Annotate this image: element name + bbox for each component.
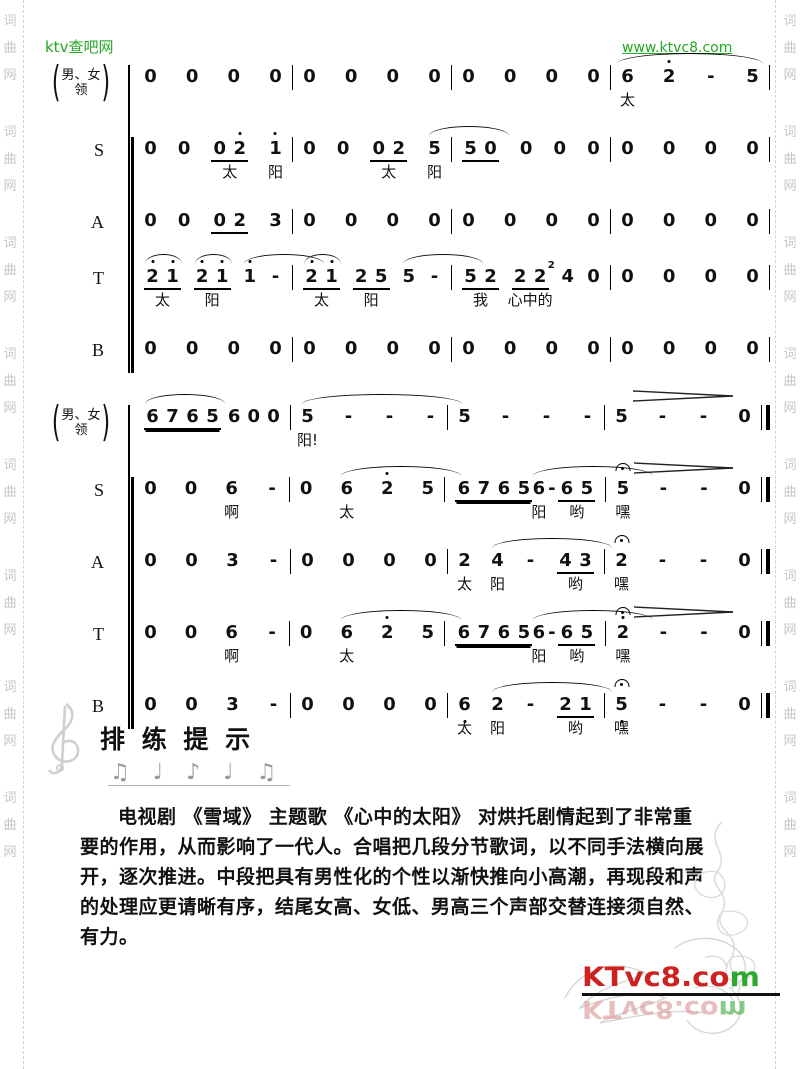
- treble-clef-icon: [36, 698, 94, 778]
- rest-note: 0: [227, 66, 240, 88]
- side-border-char: 网: [783, 284, 796, 311]
- slur-arc: [341, 466, 461, 476]
- side-border-char: 词: [3, 674, 16, 701]
- measure: 0000: [291, 550, 447, 572]
- barline: [769, 137, 770, 162]
- final-barline: [761, 549, 770, 574]
- side-border-char: 词: [783, 341, 796, 368]
- voice-label: S: [36, 140, 126, 161]
- staff-row: S0002太1阳0002太5阳500000000: [36, 130, 770, 184]
- note-group: 52我: [462, 266, 499, 290]
- note: 6: [146, 406, 159, 428]
- barline: [769, 265, 770, 290]
- tips-header: 排 练 提 示 ♫ ♩ ♪ ♩ ♫: [36, 712, 760, 786]
- side-border-char: 词: [783, 8, 796, 35]
- side-border-char: 词: [3, 341, 16, 368]
- rest-note: 0: [621, 210, 634, 232]
- rest-note: 0: [738, 550, 751, 572]
- rest-note: 0: [303, 138, 316, 160]
- note: 5: [464, 266, 477, 288]
- dash-note: -: [269, 266, 282, 288]
- rest-note: 0: [428, 210, 441, 232]
- slur-arc: [145, 394, 225, 404]
- note: 1阳: [269, 138, 282, 160]
- note: 5: [517, 622, 530, 644]
- dash-note: -: [656, 406, 669, 428]
- dash-note: -: [697, 622, 710, 644]
- watermark-reflection-green: m: [719, 995, 747, 1024]
- side-border-char: 网: [783, 506, 796, 533]
- lyric: 阳: [490, 575, 505, 593]
- measure: 5阳!---: [291, 406, 447, 428]
- note: 6: [560, 478, 573, 500]
- note: 6: [186, 406, 199, 428]
- rest-note: 0: [621, 338, 634, 360]
- rest-note: 0: [372, 138, 385, 160]
- watermark-text: KTvc8.com: [582, 962, 800, 993]
- side-border-char: 网: [783, 839, 796, 866]
- rest-note: 0: [587, 210, 600, 232]
- note: 4: [561, 266, 574, 288]
- site-logo[interactable]: ktv查吧网: [45, 36, 113, 57]
- rest-note: 0: [186, 66, 199, 88]
- note: 5: [746, 66, 759, 88]
- hairpin-icon: [633, 390, 733, 402]
- fermata-icon: [615, 607, 630, 615]
- lyric: 阳: [364, 291, 379, 309]
- side-border-char: 词: [3, 230, 16, 257]
- note-group: 6765: [455, 622, 532, 646]
- dash-note: -: [697, 478, 710, 500]
- measure: 5--0: [605, 406, 761, 428]
- dash-note: -: [524, 550, 537, 572]
- measure: 06太25: [290, 478, 445, 500]
- measure: 21太25阳5-: [293, 266, 451, 290]
- note: 2: [355, 266, 368, 288]
- rest-note: 0: [746, 138, 759, 160]
- side-border-char: 曲: [3, 479, 16, 506]
- side-border-char: 词: [783, 563, 796, 590]
- rest-note: 0: [663, 338, 676, 360]
- note: 6阳: [532, 478, 545, 500]
- side-border-char: 曲: [783, 35, 796, 62]
- lyric: 阳: [205, 291, 220, 309]
- measure: 6太2-5: [611, 66, 769, 88]
- note: 5: [421, 478, 434, 500]
- staff-row: A003-00002太4阳-43哟2嘿--0: [36, 542, 770, 596]
- lyric: 阳: [531, 647, 546, 665]
- voice-label: S: [36, 480, 126, 501]
- rest-note: 0: [504, 210, 517, 232]
- note-group: 25阳: [353, 266, 390, 290]
- rest-note: 0: [462, 210, 475, 232]
- note: 6: [497, 622, 510, 644]
- site-url-link[interactable]: www.ktvc8.com: [622, 40, 732, 56]
- side-border-char: 词: [783, 230, 796, 257]
- slur-arc: [429, 126, 509, 136]
- note: 5: [206, 406, 219, 428]
- lyric: 啊: [224, 503, 239, 521]
- rest-note: 0: [424, 550, 437, 572]
- left-side-watermark-text: 词曲网词曲网词曲网词曲网词曲网词曲网词曲网词曲网: [0, 0, 20, 1069]
- rest-note: 0: [504, 338, 517, 360]
- note: 1: [166, 266, 179, 288]
- note: 2: [663, 66, 676, 88]
- rest-note: 0: [300, 478, 313, 500]
- lyric: 太: [222, 163, 237, 181]
- barline: [769, 209, 770, 234]
- dash-note: -: [697, 406, 710, 428]
- note-group: 6765: [455, 478, 532, 502]
- measure: 06太25: [290, 622, 445, 644]
- measure: 006啊-: [134, 622, 289, 644]
- note: 6: [497, 478, 510, 500]
- note-group: 21阳: [194, 266, 231, 290]
- lyric: 太: [339, 647, 354, 665]
- rest-note: 0: [303, 210, 316, 232]
- side-border-char: 词: [3, 563, 16, 590]
- rest-note: 0: [269, 66, 282, 88]
- rest-note: 0: [178, 138, 191, 160]
- score-system: (男、女领)0000000000006太2-5S0002太1阳0002太5阳50…: [36, 58, 770, 384]
- rest-note: 0: [144, 138, 157, 160]
- dash-note: -: [656, 550, 669, 572]
- note: 7: [477, 622, 490, 644]
- note: 5: [580, 478, 593, 500]
- rest-note: 0: [345, 210, 358, 232]
- rest-note: 0: [247, 406, 260, 428]
- slur-arc: [341, 610, 461, 620]
- side-border-char: 网: [783, 617, 796, 644]
- staff-row: A00023000000000000: [36, 202, 770, 256]
- dash-note: -: [267, 550, 280, 572]
- lyric: 太: [457, 575, 472, 593]
- note: 6太: [621, 66, 634, 88]
- note-group: 65哟: [558, 478, 595, 502]
- rest-note: 0: [342, 550, 355, 572]
- note: 2: [381, 622, 394, 644]
- measure: 003-: [134, 550, 290, 572]
- dash-note: -: [545, 478, 558, 500]
- watermark-reflection-red: KTvc8.co: [582, 995, 719, 1024]
- dash-note: -: [540, 406, 553, 428]
- rest-note: 0: [185, 550, 198, 572]
- slur-arc: [492, 682, 612, 692]
- rest-note: 0: [704, 338, 717, 360]
- note: 5: [375, 266, 388, 288]
- lyric: 啊: [224, 647, 239, 665]
- rest-note: 0: [178, 210, 191, 232]
- measure: 006啊-: [134, 478, 289, 500]
- staff-row: T21太21阳1-21太25阳5-52我222心中的400000: [36, 258, 770, 312]
- system-barline: [128, 405, 130, 729]
- lyric: 心中的: [508, 291, 553, 309]
- note: 5: [421, 622, 434, 644]
- lyric: 阳: [531, 503, 546, 521]
- dash-note: -: [704, 66, 717, 88]
- slur-arc: [492, 538, 612, 548]
- side-border-char: 词: [3, 8, 16, 35]
- note-group: 02太: [211, 138, 248, 162]
- side-border-char: 曲: [783, 812, 796, 839]
- watermark-reflection: KTvc8.com: [582, 995, 800, 1024]
- side-border-char: 曲: [3, 146, 16, 173]
- rest-note: 0: [144, 338, 157, 360]
- measure: 0000: [452, 338, 610, 360]
- tips-paragraph: 电视剧 《雪域》 主题歌 《心中的太阳》 对烘托剧情起到了非常重要的作用，从而影…: [80, 802, 710, 952]
- rest-note: 0: [428, 66, 441, 88]
- side-border-char: 曲: [3, 590, 16, 617]
- side-border-char: 曲: [3, 812, 16, 839]
- dash-note: -: [424, 406, 437, 428]
- barline: [769, 65, 770, 90]
- side-border-char: 词: [783, 674, 796, 701]
- note-group: 43哟: [557, 550, 594, 574]
- rest-note: 0: [144, 478, 157, 500]
- voice-label: T: [36, 268, 126, 289]
- measure: 5嘿--0: [606, 478, 761, 500]
- note: 22: [534, 266, 547, 288]
- note: 6: [457, 622, 470, 644]
- hairpin-icon: [634, 462, 733, 474]
- measure: 0000: [611, 210, 769, 232]
- measure: 52我222心中的40: [452, 266, 610, 290]
- measure: 2太4阳-43哟: [448, 550, 604, 574]
- measure: 0000: [134, 338, 292, 360]
- note: 1: [216, 266, 229, 288]
- measure: 50000: [452, 138, 610, 162]
- dash-note: -: [657, 478, 670, 500]
- note-group: 02: [211, 210, 248, 234]
- measure: 0000: [611, 338, 769, 360]
- note: 2嘿: [615, 550, 628, 572]
- measure: 2嘿--0: [606, 622, 761, 644]
- side-border-char: 网: [3, 839, 16, 866]
- rest-note: 0: [663, 266, 676, 288]
- rest-note: 0: [545, 66, 558, 88]
- side-border-char: 网: [783, 728, 796, 755]
- note: 7: [166, 406, 179, 428]
- side-border-char: 词: [3, 119, 16, 146]
- rest-note: 0: [704, 266, 717, 288]
- lyric: 阳: [427, 163, 442, 181]
- rest-note: 0: [484, 138, 497, 160]
- dash-note: -: [266, 478, 279, 500]
- voice-label: A: [36, 212, 126, 233]
- side-border-char: 网: [783, 62, 796, 89]
- rest-note: 0: [704, 210, 717, 232]
- rest-note: 0: [345, 338, 358, 360]
- jianpu-score: (男、女领)0000000000006太2-5S0002太1阳0002太5阳50…: [36, 58, 770, 758]
- staff-row: T006啊-06太2567656阳-65哟2嘿--0: [36, 614, 770, 668]
- side-border-char: 曲: [783, 368, 796, 395]
- dash-note: -: [428, 266, 441, 288]
- rest-note: 0: [587, 66, 600, 88]
- staff-row: S006啊-06太2567656阳-65哟5嘿--0: [36, 470, 770, 524]
- system-barline: [128, 65, 130, 373]
- rest-note: 0: [587, 138, 600, 160]
- note-group: 65哟: [558, 622, 595, 646]
- rest-note: 0: [545, 210, 558, 232]
- note: 2: [484, 266, 497, 288]
- dash-note: -: [342, 406, 355, 428]
- choir-bracket: [131, 477, 134, 729]
- rest-note: 0: [704, 138, 717, 160]
- lyric: 太: [314, 291, 329, 309]
- rest-note: 0: [144, 210, 157, 232]
- dash-note: -: [697, 550, 710, 572]
- rest-note: 0: [738, 406, 751, 428]
- side-border-char: 词: [3, 452, 16, 479]
- note: 1: [325, 266, 338, 288]
- side-border-char: 词: [783, 119, 796, 146]
- tips-heading: 排 练 提 示: [100, 720, 290, 756]
- rest-note: 0: [337, 138, 350, 160]
- rest-note: 0: [213, 210, 226, 232]
- rest-note: 0: [386, 210, 399, 232]
- side-border-char: 网: [3, 395, 16, 422]
- note: 6太: [340, 622, 353, 644]
- side-border-char: 网: [783, 173, 796, 200]
- note: 5: [615, 406, 628, 428]
- note-group: 21太: [303, 266, 340, 290]
- rest-note: 0: [621, 266, 634, 288]
- note: 4阳: [491, 550, 504, 572]
- final-barline: [761, 693, 770, 718]
- rest-note: 0: [545, 338, 558, 360]
- note-group: 222心中的: [512, 266, 549, 290]
- rest-note: 0: [185, 622, 198, 644]
- hairpin-icon: [634, 606, 733, 618]
- measure: 00023: [134, 210, 292, 234]
- note: 5嘿: [616, 478, 629, 500]
- side-border-char: 网: [3, 617, 16, 644]
- note: 4: [559, 550, 572, 572]
- lyric: 嘿: [615, 503, 630, 521]
- rest-note: 0: [301, 550, 314, 572]
- note: 5: [464, 138, 477, 160]
- sheet-music-page: 词曲网词曲网词曲网词曲网词曲网词曲网词曲网词曲网 词曲网词曲网词曲网词曲网词曲网…: [0, 0, 800, 1069]
- rest-note: 0: [303, 338, 316, 360]
- rest-note: 0: [462, 338, 475, 360]
- rest-note: 0: [144, 550, 157, 572]
- note: 6: [457, 478, 470, 500]
- note: 3: [269, 210, 282, 232]
- rest-note: 0: [738, 478, 751, 500]
- rehearsal-tips-section: 排 练 提 示 ♫ ♩ ♪ ♩ ♫ 电视剧 《雪域》 主题歌 《心中的太阳》 对…: [36, 712, 760, 952]
- dash-note: -: [383, 406, 396, 428]
- side-border-char: 网: [3, 284, 16, 311]
- side-border-char: 网: [3, 728, 16, 755]
- left-dashed-border: [23, 0, 24, 1069]
- rest-note: 0: [746, 338, 759, 360]
- measure: 67656阳-65哟: [445, 622, 605, 646]
- side-border-char: 词: [783, 452, 796, 479]
- lyric: 哟: [569, 647, 584, 665]
- rest-note: 0: [738, 622, 751, 644]
- note: 3: [579, 550, 592, 572]
- rest-note: 0: [386, 66, 399, 88]
- voice-label: T: [36, 624, 126, 645]
- rest-note: 0: [462, 66, 475, 88]
- measure: 2嘿--0: [605, 550, 761, 572]
- voice-label: B: [36, 340, 126, 361]
- rest-note: 0: [553, 138, 566, 160]
- voice-label: A: [36, 552, 126, 573]
- measure: 0002太5阳: [293, 138, 451, 162]
- rest-note: 0: [746, 210, 759, 232]
- lyric: 太: [381, 163, 396, 181]
- staff-row: (男、女领)67656005阳!---5---5--0: [36, 398, 770, 452]
- note-group: 50: [462, 138, 499, 162]
- side-border-char: 词: [783, 785, 796, 812]
- note: 6太: [340, 478, 353, 500]
- final-barline: [761, 477, 770, 502]
- side-border-char: 曲: [783, 257, 796, 284]
- final-barline: [761, 621, 770, 646]
- note: 6啊: [225, 622, 238, 644]
- note: 6啊: [225, 478, 238, 500]
- lyric: 阳: [268, 163, 283, 181]
- watermark-red-part: KTvc8.co: [582, 962, 729, 993]
- rest-note: 0: [267, 406, 280, 428]
- lyric: 太: [339, 503, 354, 521]
- note: 2嘿: [616, 622, 629, 644]
- dash-note: -: [499, 406, 512, 428]
- musical-notes-icon: ♫ ♩ ♪ ♩ ♫: [108, 760, 290, 786]
- lyric: 哟: [569, 503, 584, 521]
- side-border-char: 曲: [783, 701, 796, 728]
- measure: 0000: [452, 66, 610, 88]
- voice-label: (男、女领): [36, 68, 126, 98]
- rest-note: 0: [345, 66, 358, 88]
- side-border-char: 网: [3, 506, 16, 533]
- rest-note: 0: [227, 338, 240, 360]
- note: 6阳: [532, 622, 545, 644]
- rest-note: 0: [269, 338, 282, 360]
- dash-note: -: [657, 622, 670, 644]
- rest-note: 0: [587, 338, 600, 360]
- note: 5: [402, 266, 415, 288]
- rest-note: 0: [144, 622, 157, 644]
- rest-note: 0: [428, 338, 441, 360]
- side-border-char: 曲: [3, 35, 16, 62]
- rest-note: 0: [303, 66, 316, 88]
- voice-label: (男、女领): [36, 408, 126, 438]
- fermata-icon: [614, 679, 629, 687]
- watermark-green-part: m: [729, 962, 759, 993]
- side-border-char: 词: [3, 785, 16, 812]
- note: 6: [228, 406, 241, 428]
- note: 2: [381, 478, 394, 500]
- note: 2: [146, 266, 159, 288]
- side-border-char: 曲: [783, 146, 796, 173]
- note-group: 21太: [144, 266, 181, 290]
- lyric: 嘿: [614, 575, 629, 593]
- final-barline: [761, 405, 770, 430]
- staff-row: (男、女领)0000000000006太2-5: [36, 58, 770, 112]
- fermata-icon: [614, 535, 629, 543]
- side-border-char: 曲: [3, 368, 16, 395]
- note: 5: [517, 478, 530, 500]
- score-system: (男、女领)67656005阳!---5---5--0S006啊-06太2567…: [36, 398, 770, 740]
- barline: [769, 337, 770, 362]
- slur-arc: [302, 394, 462, 404]
- lyric: 太: [155, 291, 170, 309]
- rest-note: 0: [520, 138, 533, 160]
- note: 2: [305, 266, 318, 288]
- rest-note: 0: [213, 138, 226, 160]
